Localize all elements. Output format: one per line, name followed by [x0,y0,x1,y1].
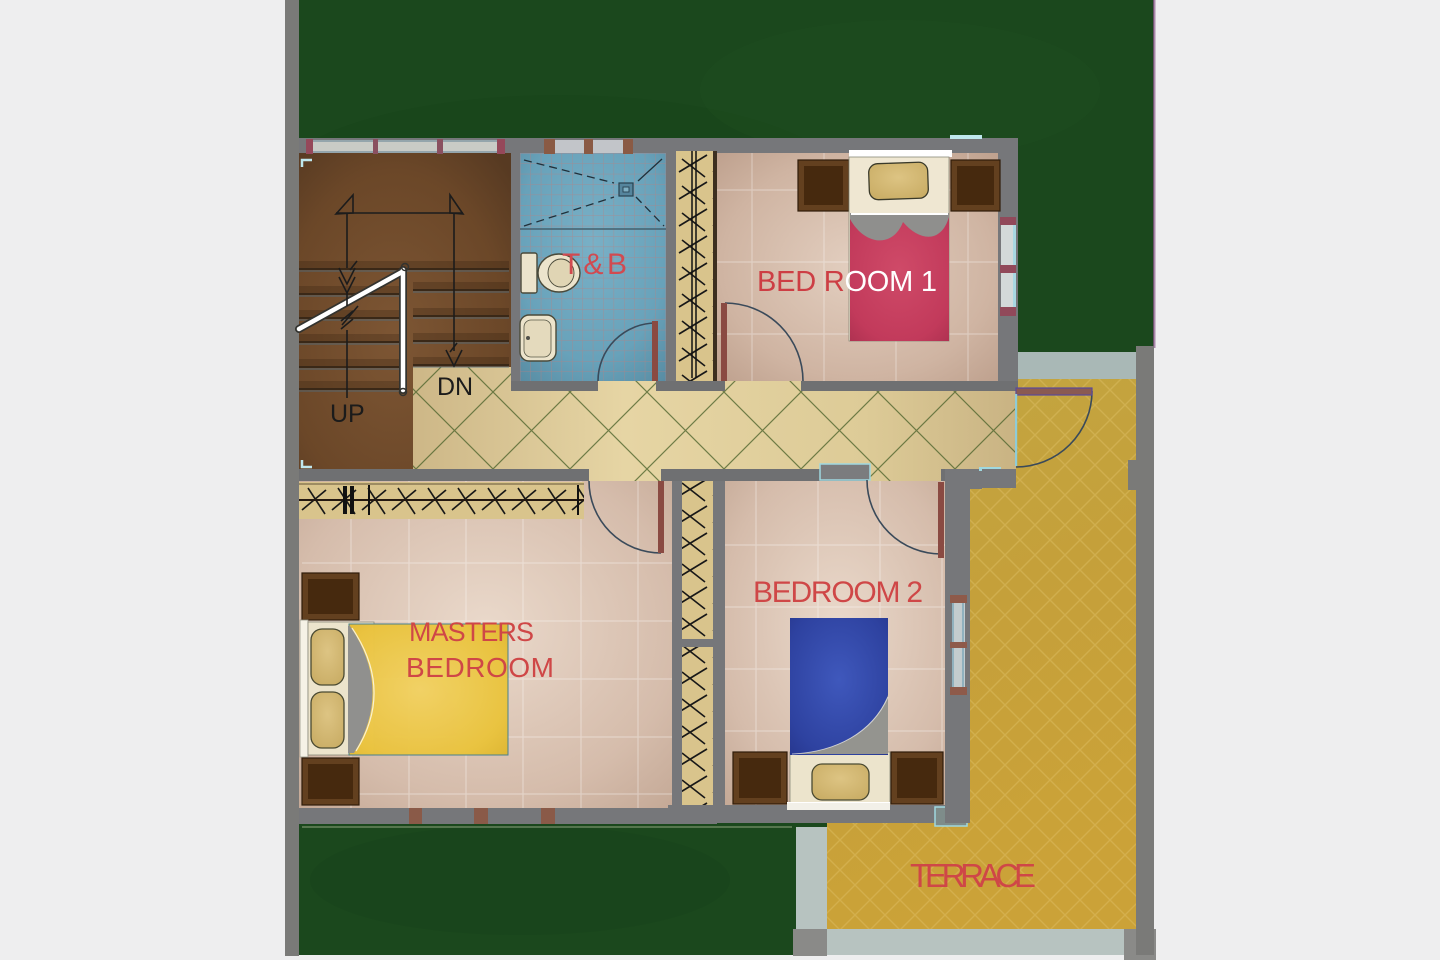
svg-text:T & B: T & B [562,248,627,281]
svg-text:DN: DN [437,373,473,401]
svg-text:BED ROOM 1: BED ROOM 1 [757,266,937,298]
svg-text:BEDROOM 2: BEDROOM 2 [753,576,923,609]
svg-text:UP: UP [330,400,365,428]
svg-text:TERRACE: TERRACE [910,857,1036,894]
svg-text:BEDROOM: BEDROOM [406,652,554,683]
svg-text:MASTERS: MASTERS [409,617,534,647]
